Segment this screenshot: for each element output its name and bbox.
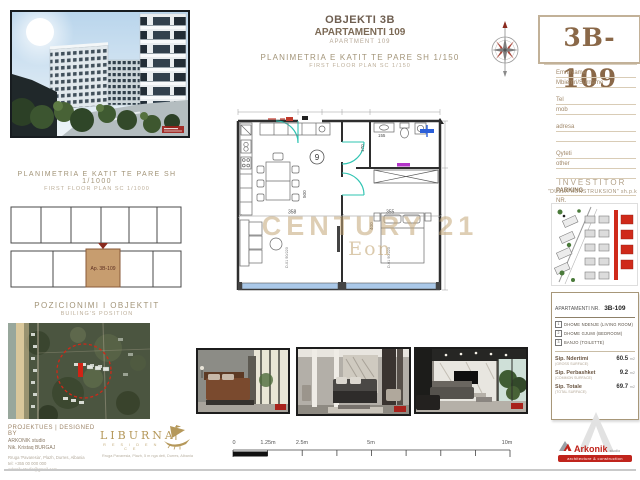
- building-render-photo: [10, 10, 190, 138]
- info-heading: APARTAMENTI NR.: [555, 306, 600, 312]
- area-unit: m2: [630, 357, 635, 361]
- designer-studio: ARKONIK studio: [8, 438, 103, 444]
- arkonik-wordmark: Arkonik studio: [558, 440, 620, 454]
- sheet-bottom-edge: [4, 469, 636, 471]
- room-row: 2 DHOME GJUMI (BEDROOM): [555, 330, 635, 337]
- area-sublabel: (GROSS SURFACE): [555, 362, 588, 366]
- interior-render-bedroom-2: [296, 347, 411, 416]
- info-divider: [555, 351, 635, 352]
- room-name: DHOME NDENJE (LIVING ROOM): [564, 322, 633, 327]
- room-row: 1 DHOME NDENJE (LIVING ROOM): [555, 321, 635, 328]
- field-address: adresa: [556, 124, 636, 132]
- area-unit: m2: [630, 385, 635, 389]
- investor-name: "DULLA KONSTRUKSION" sh.p.k: [545, 189, 640, 195]
- designer-architect: Nik. Kristaq BURGAJ: [8, 445, 103, 451]
- code-box-fold-line: [544, 64, 637, 65]
- scale-label: 1.25m: [260, 440, 275, 446]
- tv-unit: [337, 226, 340, 252]
- project-title: OBJEKTI 3B: [245, 14, 475, 26]
- building-render-illustration: [12, 12, 188, 136]
- key-plan-drawing: Ap. 3B-109: [8, 203, 184, 291]
- room-number-badge: 2: [555, 330, 562, 337]
- scale-bar: 0 1.25m 2.5m 5m 10m: [231, 440, 513, 460]
- arkonik-suffix: studio: [610, 448, 621, 453]
- area-row: Sip. Perbashket (COMMON SURFACE) 9.2 m2: [555, 370, 635, 380]
- designer-address: Rruga 'Pavaresia', Plazh, Durres, Albani…: [8, 455, 103, 460]
- window-band: [346, 283, 436, 289]
- liburna-subtitle: R E S I D E N C E: [100, 443, 162, 451]
- plan-scale-title-en: FIRST FLOOR PLAN SC 1/150: [245, 63, 475, 69]
- highlighted-building-bar: [614, 210, 618, 280]
- position-subtitle: BUILING'S POSITION: [8, 311, 186, 317]
- scale-label: 5m: [367, 440, 375, 446]
- thumb-watermark: [511, 403, 523, 409]
- dim-hall: 170: [360, 144, 365, 152]
- room-number-label: 9: [315, 153, 320, 162]
- investor-block: INVESTITOR "DULLA KONSTRUKSION" sh.p.k: [545, 178, 640, 195]
- apartment-info-box: APARTAMENTI NR. 3B-109 1 DHOME NDENJE (L…: [551, 292, 639, 420]
- dim-right-width: 355: [386, 210, 395, 216]
- dim-left-width: 358: [288, 210, 297, 216]
- unit-code-box: 3B-109: [538, 15, 640, 64]
- arkonik-tagline: architecture & construction: [558, 455, 632, 462]
- designer-tel: tel: +355 00 000 000: [8, 461, 103, 466]
- room-number-badge: 1: [555, 321, 562, 328]
- area-value: 9.2: [620, 370, 628, 376]
- photo-watermark: [162, 126, 184, 133]
- area-value: 60.5: [616, 356, 628, 362]
- highlighted-building: [78, 363, 83, 377]
- arkonik-name: Arkonik: [574, 444, 608, 454]
- site-plan-map: [551, 203, 638, 286]
- field-surname: Mbiemri/Surname: [556, 80, 636, 88]
- info-box-header: APARTAMENTI NR. 3B-109: [555, 297, 635, 318]
- wardrobe: [374, 170, 438, 183]
- sheet-header: OBJEKTI 3B APARTAMENTI 109 APARTMENT 109…: [245, 14, 475, 69]
- dim-right-height: 400: [369, 222, 374, 230]
- area-value: 69.7: [616, 384, 628, 390]
- key-plan-unit-label: Ap. 3B-109: [90, 266, 115, 272]
- thumb-watermark: [275, 404, 286, 410]
- apartment-title-en: APARTMENT 109: [245, 39, 475, 45]
- field-city: Qyteti: [556, 151, 636, 159]
- area-sublabel: (COMMON SURFACE): [555, 376, 595, 380]
- position-header: POZICIONIMI I OBJEKTIT BUILING'S POSITIO…: [8, 301, 186, 317]
- floor-plan-drawing: 9: [230, 96, 448, 296]
- liburna-name: LIBURNA: [100, 429, 162, 442]
- room-name: BANJO (TOILETTE): [564, 340, 604, 345]
- area-row: Sip. Ndertimi (GROSS SURFACE) 60.5 m2: [555, 356, 635, 366]
- field-other: other: [556, 161, 636, 169]
- scale-label: 2.5m: [296, 440, 308, 446]
- room-number-badge: 3: [555, 339, 562, 346]
- designer-block: PROJEKTUES | DESIGNED BY ARKONIK studio …: [8, 425, 103, 472]
- info-unit-code: 3B-109: [604, 305, 625, 312]
- compass-rose-icon: [482, 20, 528, 78]
- radiator: [397, 163, 410, 167]
- plan-sheet: OBJEKTI 3B APARTAMENTI 109 APARTMENT 109…: [0, 0, 640, 480]
- position-title: POZICIONIMI I OBJEKTIT: [8, 301, 186, 310]
- liburna-address: Rruga Pavaresia, Plazh, 5 m nga deti, Du…: [90, 454, 205, 458]
- dim-left-height: 500: [302, 190, 307, 198]
- key-plan-subtitle: FIRST FLOOR PLAN SC 1/1000: [8, 186, 186, 192]
- key-plan-header: PLANIMETRIA E KATIT TE PARE SH 1/1000 FI…: [8, 171, 186, 192]
- room-row: 3 BANJO (TOILETTE): [555, 339, 635, 346]
- entry-marker: [98, 243, 108, 249]
- interior-render-living: [414, 347, 528, 414]
- scale-label: 0: [232, 440, 235, 446]
- investor-heading: INVESTITOR: [545, 178, 640, 187]
- field-name: Emri/Name: [556, 70, 636, 78]
- plan-scale-title: PLANIMETRIA E KATIT TE PARE SH 1/150: [245, 53, 475, 62]
- area-unit: m2: [630, 371, 635, 375]
- bed: [374, 213, 431, 263]
- apartment-title: APARTAMENTI 109: [245, 27, 475, 38]
- window-band: [242, 283, 338, 289]
- arkonik-mark-icon: [558, 440, 572, 452]
- key-plan-title: PLANIMETRIA E KATIT TE PARE SH 1/1000: [8, 171, 186, 185]
- designer-heading: PROJEKTUES | DESIGNED BY: [8, 425, 103, 437]
- door-label-left: D-01 90/220: [285, 247, 289, 268]
- field-tel: Tel: [556, 97, 636, 105]
- area-row: Sip. Totale (TOTAL SURFACE) 69.7 m2: [555, 384, 635, 394]
- liburna-logo: LIBURNA R E S I D E N C E: [100, 429, 162, 451]
- scale-label: 10m: [502, 440, 513, 446]
- thumb-watermark: [394, 406, 406, 412]
- room-name: DHOME GJUMI (BEDROOM): [564, 331, 622, 336]
- door-label-right: D-01 90/220: [387, 247, 391, 268]
- area-sublabel: (TOTAL SURFACE): [555, 390, 586, 394]
- arkonik-logo-block: Arkonik studio architecture & constructi…: [556, 414, 638, 470]
- satellite-map: [8, 323, 150, 419]
- field-mob: mob: [556, 107, 636, 115]
- liburna-ship-icon: [162, 424, 192, 450]
- dim-bath: 155: [378, 133, 386, 138]
- interior-render-bedroom-1: [196, 348, 290, 414]
- field-blank-line: [556, 134, 636, 142]
